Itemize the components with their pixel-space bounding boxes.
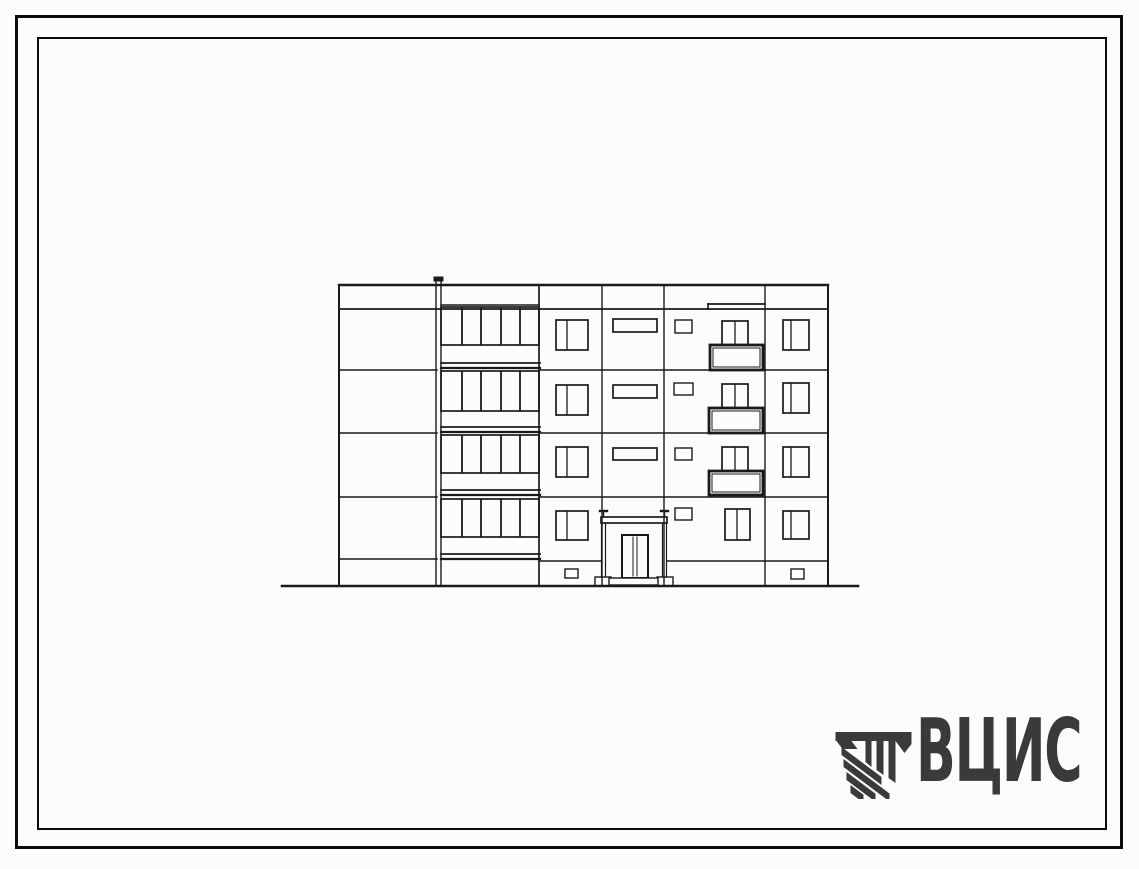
window-a-floor2 bbox=[556, 385, 588, 415]
building-elevation-drawing bbox=[0, 0, 1139, 869]
balcony-floor1 bbox=[710, 345, 763, 370]
window-d-floor1 bbox=[783, 320, 809, 350]
window-d-floor3 bbox=[783, 447, 809, 477]
small-window-floor2 bbox=[674, 383, 693, 395]
window-a-floor4 bbox=[556, 511, 588, 540]
loggia-glazing-floor4 bbox=[441, 499, 539, 537]
small-window-floor3 bbox=[675, 448, 692, 460]
loggia-glazing-floor1 bbox=[441, 307, 539, 345]
loggia-glazing-floor2 bbox=[441, 371, 539, 411]
entrance-door bbox=[622, 535, 648, 578]
ribbon-window-floor1 bbox=[613, 319, 657, 332]
window-d-floor2 bbox=[783, 383, 809, 413]
ribbon-window-floor2 bbox=[613, 385, 657, 398]
window-a-floor3 bbox=[556, 447, 588, 477]
entrance-step bbox=[609, 578, 658, 585]
loggia-glazing-floor3 bbox=[441, 435, 539, 473]
basement-window-left bbox=[565, 569, 578, 578]
porch-canopy bbox=[601, 517, 667, 523]
small-window-floor1 bbox=[675, 320, 692, 333]
balcony-floor3 bbox=[709, 471, 763, 495]
window-a-floor1 bbox=[556, 320, 588, 350]
ribbon-window-floor3 bbox=[613, 448, 657, 460]
balcony-floor2 bbox=[709, 408, 763, 433]
window-d-floor4 bbox=[783, 511, 809, 539]
basement-window-right bbox=[791, 569, 804, 579]
porch-base-right bbox=[657, 577, 673, 586]
small-window-floor4 bbox=[675, 508, 692, 520]
